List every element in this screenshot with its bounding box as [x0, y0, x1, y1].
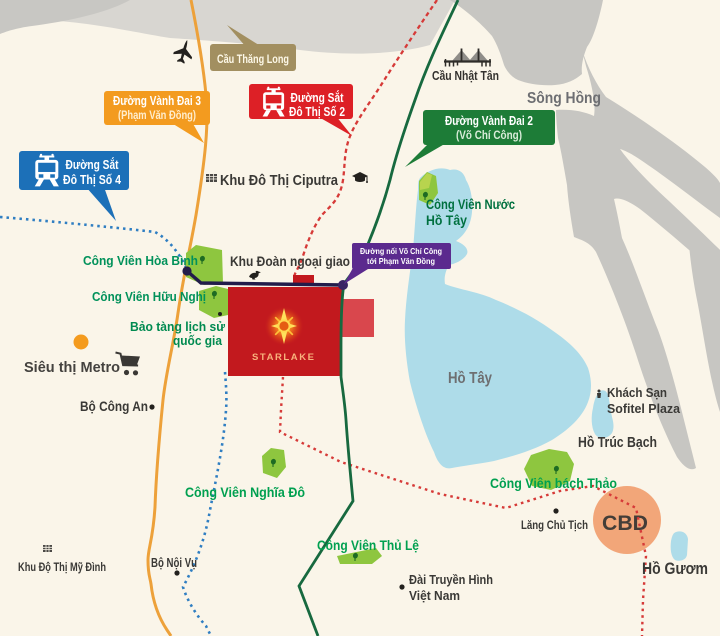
svg-text:Đô Thị Số 2: Đô Thị Số 2 — [289, 105, 345, 119]
svg-text:Đường Vành Đai 3: Đường Vành Đai 3 — [113, 94, 201, 108]
svg-text:Đường Sắt: Đường Sắt — [291, 90, 345, 105]
svg-text:Công Viên Nghĩa Đô: Công Viên Nghĩa Đô — [185, 484, 305, 500]
svg-text:Khu Độ Thị Mỹ Đình: Khu Độ Thị Mỹ Đình — [18, 560, 106, 574]
svg-text:tới Phạm Văn Đồng: tới Phạm Văn Đồng — [367, 256, 435, 266]
svg-text:Việt Nam: Việt Nam — [409, 588, 460, 603]
svg-text:Đô Thị Số 4: Đô Thị Số 4 — [63, 173, 121, 187]
svg-text:Đường Sắt: Đường Sắt — [66, 157, 120, 172]
svg-text:Bảo tàng lịch sử: Bảo tàng lịch sử — [130, 319, 226, 334]
svg-text:Cầu Thăng Long: Cầu Thăng Long — [217, 52, 289, 66]
svg-text:Lăng Chủ Tịch: Lăng Chủ Tịch — [521, 518, 588, 532]
svg-text:Công Viên bách Thảo: Công Viên bách Thảo — [490, 476, 617, 491]
svg-text:Hồ Gươm: Hồ Gươm — [642, 559, 708, 578]
svg-text:Khách Sạn: Khách Sạn — [607, 385, 667, 400]
svg-text:quốc gia: quốc gia — [173, 333, 223, 348]
svg-text:Công Viên Hòa Bình: Công Viên Hòa Bình — [83, 253, 198, 268]
svg-text:(Phạm Văn Đồng): (Phạm Văn Đồng) — [118, 110, 196, 122]
svg-text:Sông Hồng: Sông Hồng — [527, 90, 601, 107]
svg-text:Đài Truyền Hình: Đài Truyền Hình — [409, 572, 493, 587]
svg-text:Cầu Nhật Tân: Cầu Nhật Tân — [432, 69, 499, 83]
svg-text:Công Viên Nước: Công Viên Nước — [426, 197, 515, 212]
svg-text:Khu Đoàn ngoại giao: Khu Đoàn ngoại giao — [230, 253, 350, 269]
svg-text:Đường nối Võ Chí Công: Đường nối Võ Chí Công — [360, 246, 442, 256]
svg-text:Bộ Công An: Bộ Công An — [80, 399, 148, 414]
svg-text:Hồ Tây: Hồ Tây — [448, 370, 492, 387]
svg-text:Khu Đô Thị Ciputra: Khu Đô Thị Ciputra — [220, 172, 339, 189]
svg-text:Hồ Tây: Hồ Tây — [426, 213, 467, 228]
svg-text:Đường Vành Đai 2: Đường Vành Đai 2 — [445, 113, 533, 128]
svg-text:Sofitel Plaza: Sofitel Plaza — [607, 401, 681, 416]
svg-text:Công Viên Hữu Nghị: Công Viên Hữu Nghị — [92, 289, 206, 304]
svg-text:STARLAKE: STARLAKE — [252, 352, 316, 363]
svg-text:Hồ Trúc Bạch: Hồ Trúc Bạch — [578, 435, 657, 451]
svg-text:Công Viên Thủ Lệ: Công Viên Thủ Lệ — [317, 537, 419, 553]
svg-text:Siêu thị Metro: Siêu thị Metro — [24, 359, 120, 376]
svg-text:Bộ Nội Vụ: Bộ Nội Vụ — [151, 556, 197, 570]
svg-text:(Võ Chí Công): (Võ Chí Công) — [456, 128, 522, 142]
